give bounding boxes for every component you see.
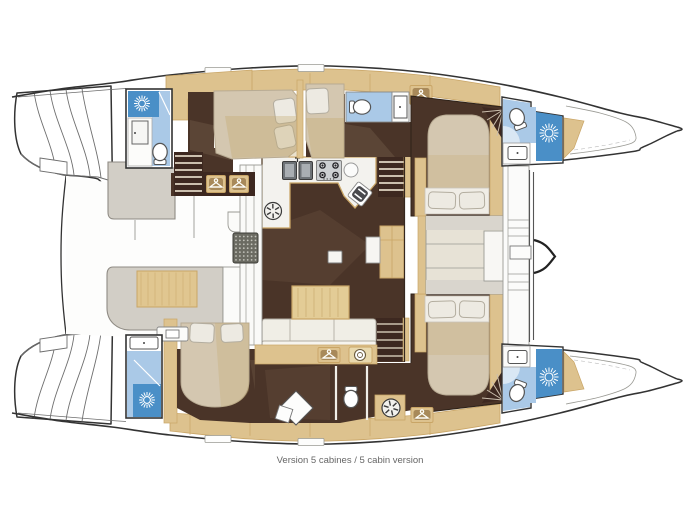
svg-text:Version 5 cabines / 5 cabin ve: Version 5 cabines / 5 cabin version (277, 455, 424, 466)
